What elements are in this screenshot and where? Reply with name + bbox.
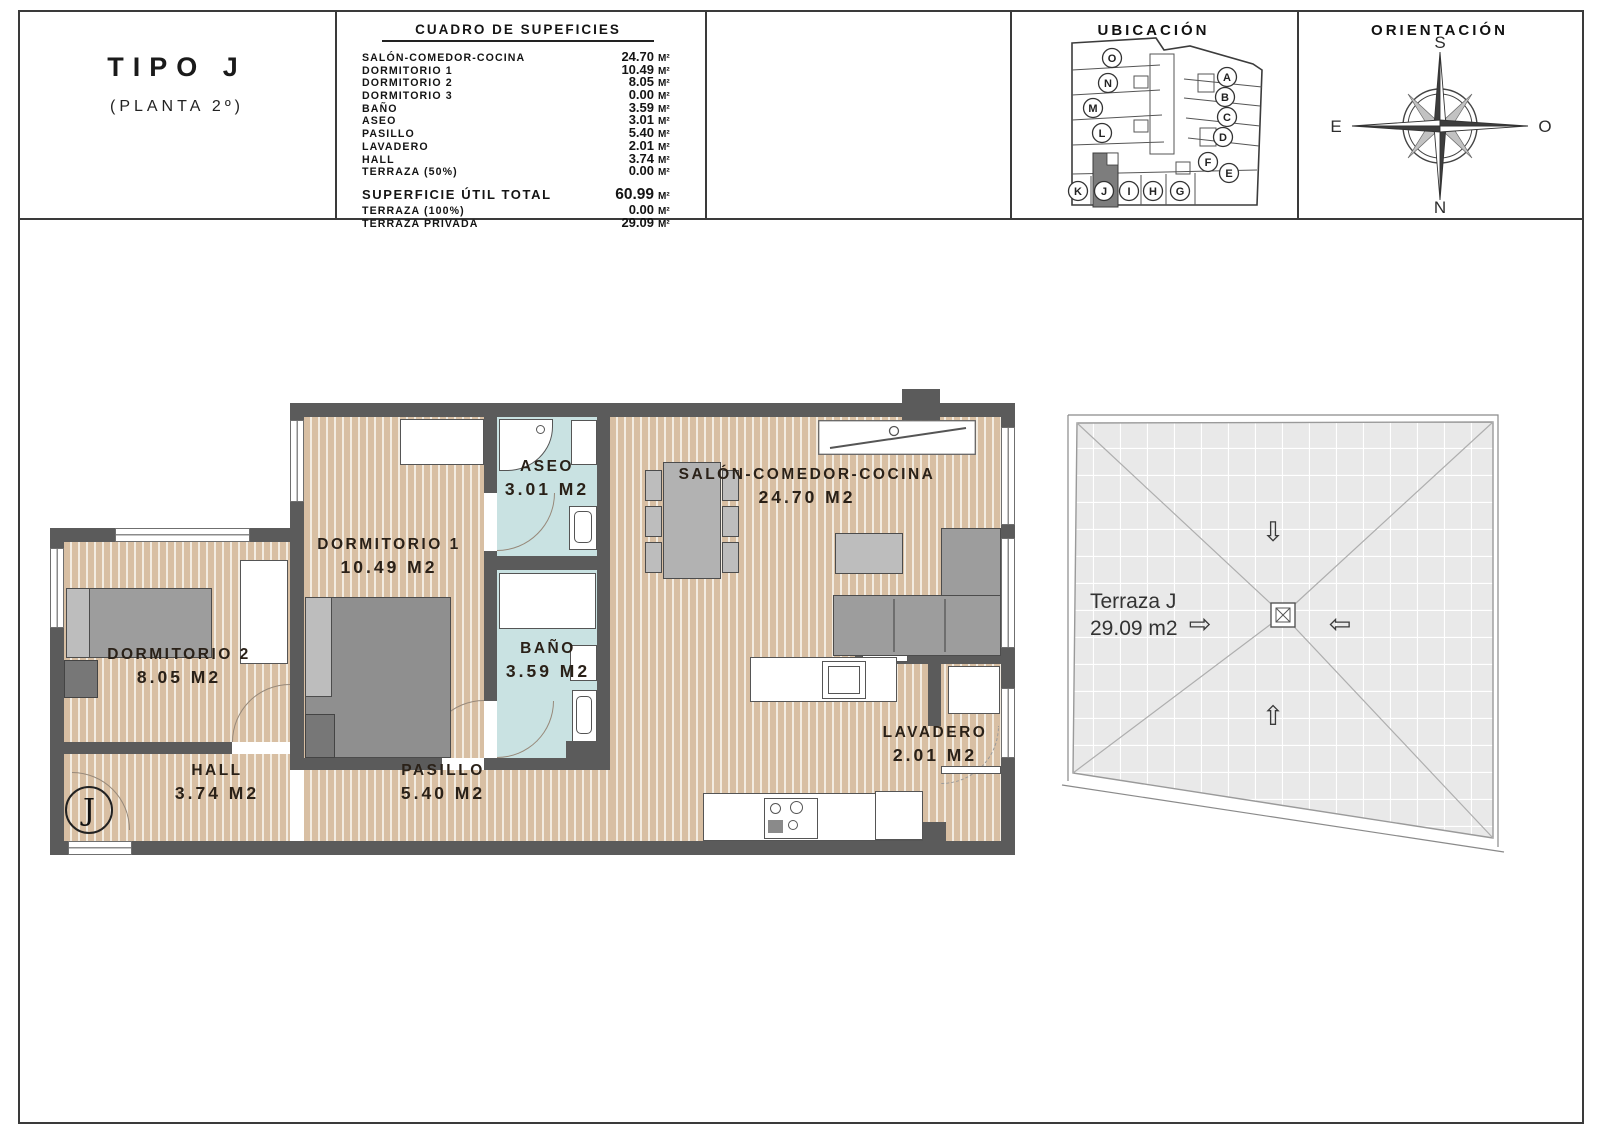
- room-label-hall: HALL 3.74 M2: [126, 762, 308, 804]
- cooktop-control: [768, 820, 783, 833]
- unit-badge: J: [65, 786, 113, 834]
- room-area: 8.05 M2: [70, 667, 288, 688]
- row-unit: M²: [654, 191, 686, 202]
- table-row: SALÓN-COMEDOR-COCINA24.70M²: [350, 49, 686, 62]
- compass-label-n: N: [1434, 198, 1446, 214]
- window-d1-left: [290, 420, 304, 502]
- unit-letter: N: [1104, 78, 1112, 90]
- surface-table-title: CUADRO DE SUPEFICIES: [382, 22, 654, 42]
- row-label: ASEO: [350, 115, 598, 127]
- row-unit: M²: [654, 91, 686, 102]
- kitchen-sink-basin: [828, 666, 860, 694]
- room-area: 3.74 M2: [126, 783, 308, 804]
- sofa-seam: [944, 599, 946, 652]
- header-divider: [18, 218, 1582, 220]
- unit-letter: K: [1074, 186, 1082, 198]
- unit-letter: F: [1205, 157, 1212, 169]
- room-area: 10.49 M2: [293, 557, 485, 578]
- surface-table: CUADRO DE SUPEFICIES SALÓN-COMEDOR-COCIN…: [350, 22, 686, 227]
- burner: [788, 820, 798, 830]
- unit-letter: O: [1108, 53, 1117, 65]
- row-unit: M²: [654, 66, 686, 77]
- wall-aseo-bano-divider: [484, 556, 610, 570]
- surface-table-totals: SUPERFICIE ÚTIL TOTAL60.99M² TERRAZA (10…: [350, 186, 686, 227]
- wall-d2-bottom: [64, 742, 232, 754]
- sideboard: [818, 420, 976, 455]
- wall-lavadero-stub: [928, 664, 941, 726]
- table-total-row: TERRAZA (100%)0.00M²: [350, 202, 686, 215]
- row-value: 29.09: [598, 215, 654, 230]
- washing-machine: [948, 666, 1000, 714]
- room-name: DORMITORIO 1: [293, 536, 485, 554]
- burner: [790, 801, 803, 814]
- arrow-left-icon: ⇦: [1329, 609, 1352, 640]
- shower-head: [536, 425, 545, 434]
- arrow-down-icon: ⇩: [1262, 517, 1285, 548]
- window-d2-top: [115, 528, 250, 542]
- coffee-table: [835, 533, 903, 574]
- row-unit: M²: [654, 78, 686, 89]
- unit-letter: J: [1101, 186, 1107, 198]
- room-name: ASEO: [489, 458, 605, 476]
- window-salon-right-2: [1001, 538, 1015, 648]
- row-label: SALÓN-COMEDOR-COCINA: [350, 52, 598, 64]
- toilet-bowl: [576, 696, 592, 734]
- terrace-drain: [1271, 603, 1295, 627]
- unit-letter: A: [1223, 72, 1231, 84]
- compass-rose: S N E O: [1300, 34, 1579, 214]
- row-label: DORMITORIO 2: [350, 77, 598, 89]
- room-label-pasillo: PASILLO 5.40 M2: [352, 762, 534, 804]
- compass-label-e: E: [1330, 117, 1341, 136]
- chair: [722, 506, 739, 537]
- row-unit: M²: [654, 53, 686, 64]
- entry-door-opening: [68, 841, 132, 855]
- room-area: 3.01 M2: [489, 479, 605, 500]
- dishwasher: [875, 791, 923, 840]
- panel-divider: [1297, 10, 1299, 220]
- row-unit: M²: [654, 155, 686, 166]
- arrow-right-icon: ⇨: [1189, 609, 1212, 640]
- terrace-area: 29.09 m2: [1090, 615, 1178, 642]
- window-salon-right-1: [1001, 427, 1015, 525]
- room-name: HALL: [126, 762, 308, 780]
- unit-letter: D: [1219, 132, 1227, 144]
- row-label: DORMITORIO 1: [350, 65, 598, 77]
- room-label-salon: SALÓN-COMEDOR-COCINA 24.70 M2: [612, 466, 1002, 508]
- row-label: TERRAZA (50%): [350, 166, 598, 178]
- burner: [770, 803, 781, 814]
- compass-label-s: S: [1434, 34, 1445, 52]
- compass-cardinal-points: [1352, 52, 1528, 200]
- room-area: 5.40 M2: [352, 783, 534, 804]
- room-label-aseo: ASEO 3.01 M2: [489, 458, 605, 500]
- row-label: TERRAZA (100%): [350, 205, 598, 217]
- arrow-up-icon: ⇧: [1262, 701, 1285, 732]
- wall-bottom: [50, 841, 1015, 855]
- terrace-name: Terraza J: [1090, 588, 1178, 615]
- row-unit: M²: [654, 206, 686, 217]
- room-area: 24.70 M2: [612, 487, 1002, 508]
- unit-letter: C: [1223, 112, 1231, 124]
- room-name: LAVADERO: [852, 724, 1018, 742]
- ubicacion-map: O N M L A B C D F E K J I H G: [1010, 34, 1297, 214]
- row-label: DORMITORIO 3: [350, 90, 598, 102]
- unit-letter: L: [1099, 128, 1106, 140]
- type-title: TIPO J: [18, 52, 336, 83]
- row-unit: M²: [654, 142, 686, 153]
- unit-letter: M: [1088, 103, 1097, 115]
- room-label-dormitorio-2: DORMITORIO 2 8.05 M2: [70, 646, 288, 688]
- nightstand: [305, 714, 335, 758]
- sofa: [833, 595, 1001, 656]
- desk: [400, 419, 484, 465]
- plan-sheet: TIPO J (PLANTA 2º) CUADRO DE SUPEFICIES …: [0, 0, 1600, 1131]
- terrace-label: Terraza J 29.09 m2: [1090, 588, 1178, 643]
- room-name: BAÑO: [486, 640, 610, 658]
- unit-letter: G: [1176, 186, 1185, 198]
- unit-letter: I: [1127, 186, 1130, 198]
- chair: [645, 542, 662, 573]
- row-unit: M²: [654, 219, 686, 230]
- row-unit: M²: [654, 167, 686, 178]
- row-label: PASILLO: [350, 128, 598, 140]
- chair: [645, 506, 662, 537]
- room-area: 2.01 M2: [852, 745, 1018, 766]
- window-d2-left: [50, 548, 64, 628]
- unit-letter: B: [1221, 92, 1229, 104]
- room-area: 3.59 M2: [486, 661, 610, 682]
- room-label-dormitorio-1: DORMITORIO 1 10.49 M2: [293, 536, 485, 578]
- toilet-bowl: [574, 511, 592, 543]
- sofa-seam: [893, 599, 895, 652]
- unit-letter: E: [1225, 168, 1232, 180]
- room-name: SALÓN-COMEDOR-COCINA: [612, 466, 1002, 484]
- table-total-row: SUPERFICIE ÚTIL TOTAL60.99M²: [350, 186, 686, 202]
- row-label: LAVADERO: [350, 141, 598, 153]
- empty-panel: [707, 12, 1008, 216]
- row-label: SUPERFICIE ÚTIL TOTAL: [350, 187, 598, 202]
- unit-letter: H: [1149, 186, 1157, 198]
- floor-subtitle: (PLANTA 2º): [18, 98, 336, 116]
- compass-label-o: O: [1538, 117, 1551, 136]
- row-unit: M²: [654, 104, 686, 115]
- row-unit: M²: [654, 129, 686, 140]
- room-name: DORMITORIO 2: [70, 646, 288, 664]
- bathtub: [499, 573, 596, 629]
- row-value: 0.00: [598, 163, 654, 178]
- row-label: HALL: [350, 154, 598, 166]
- row-unit: M²: [654, 116, 686, 127]
- pillow: [305, 597, 332, 697]
- row-label: TERRAZA PRIVADA: [350, 218, 598, 230]
- room-label-bano: BAÑO 3.59 M2: [486, 640, 610, 682]
- room-name: PASILLO: [352, 762, 534, 780]
- shelf: [941, 766, 1001, 774]
- pillar-entry: [902, 389, 940, 420]
- room-label-lavadero: LAVADERO 2.01 M2: [852, 724, 1018, 766]
- unit-badge-letter: J: [83, 793, 95, 828]
- surface-table-rows: SALÓN-COMEDOR-COCINA24.70M² DORMITORIO 1…: [350, 49, 686, 176]
- cabinet: [566, 741, 597, 758]
- row-label: BAÑO: [350, 103, 598, 115]
- chair: [722, 542, 739, 573]
